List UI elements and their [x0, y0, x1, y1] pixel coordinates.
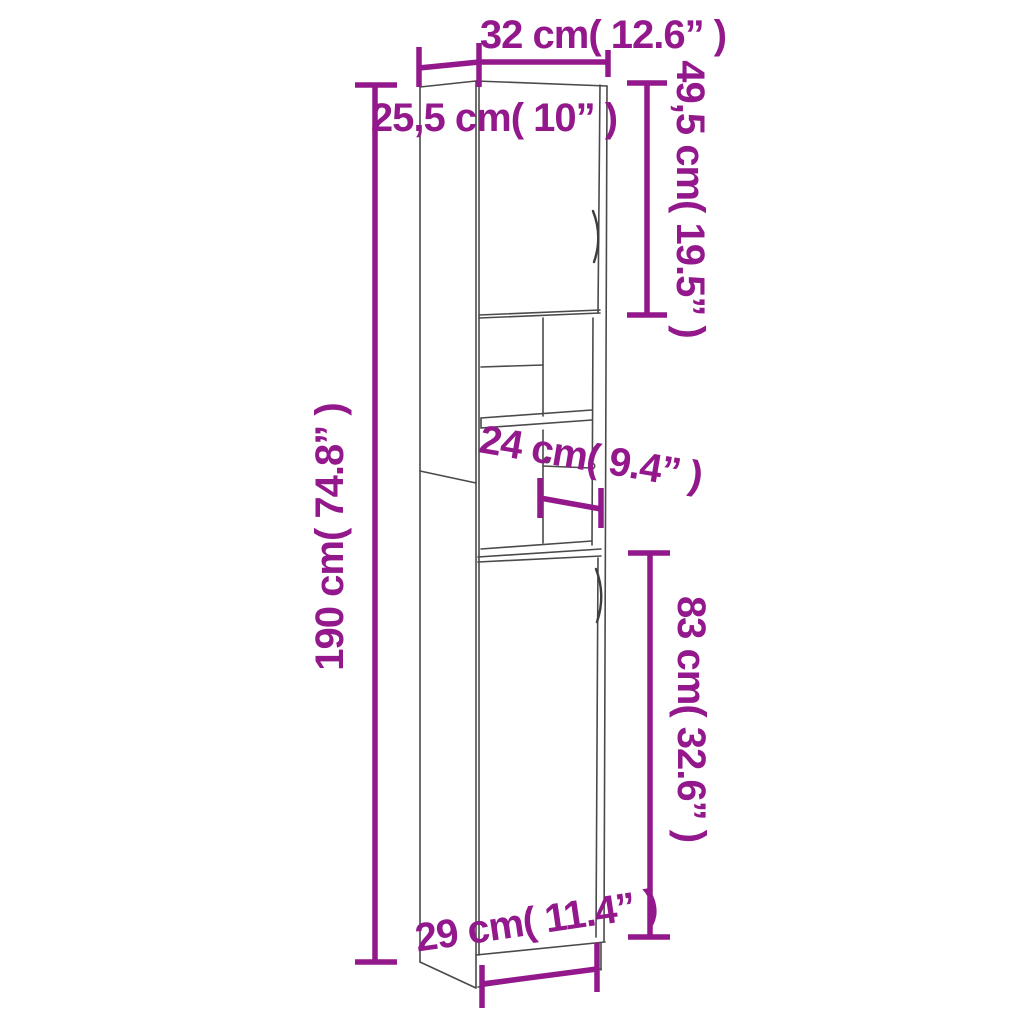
cabinet-right-edge: [604, 86, 607, 941]
upper-door-height-label: 49,5 cm( 19.5” ): [668, 60, 712, 338]
open-section-right-inner-edge: [592, 318, 593, 545]
lower-shelf-top-edge: [481, 541, 592, 549]
lower-door-right-gap: [596, 558, 598, 937]
total-height-label: 190 cm( 74.8” ): [308, 403, 352, 670]
dimension-lines: [355, 43, 670, 1008]
cabinet-outline: [420, 81, 607, 988]
diagram-canvas: 32 cm( 12.6” ) 25,5 cm( 10” ) 49,5 cm( 1…: [0, 0, 1024, 1024]
cabinet-dimension-diagram: 32 cm( 12.6” ) 25,5 cm( 10” ) 49,5 cm( 1…: [0, 0, 1024, 1024]
lower-door-height-label: 83 cm( 32.6” ): [669, 596, 713, 842]
dimension-labels: 32 cm( 12.6” ) 25,5 cm( 10” ) 49,5 cm( 1…: [308, 13, 726, 961]
top-width-dim-line: [419, 62, 608, 68]
lower-door-top-edge: [478, 556, 601, 562]
cabinet-top-left-edge: [420, 81, 476, 87]
cabinet-top-front-edge: [476, 81, 607, 86]
top-width-label: 32 cm( 12.6” ): [480, 13, 726, 57]
shelf-depth-label: 24 cm( 9.4” ): [476, 418, 705, 499]
lower-shelf-front-edge: [478, 549, 601, 557]
side-panel-seam: [420, 471, 476, 483]
side-panel-bottom-edge: [420, 962, 476, 988]
top-depth-label: 25,5 cm( 10” ): [371, 96, 617, 140]
open-section-back-line: [481, 365, 543, 367]
lower-door-handle-icon: [596, 569, 601, 622]
middle-shelf-top-edge: [481, 410, 592, 418]
upper-door-handle-icon: [593, 211, 598, 262]
bottom-width-dim-line: [482, 969, 597, 984]
